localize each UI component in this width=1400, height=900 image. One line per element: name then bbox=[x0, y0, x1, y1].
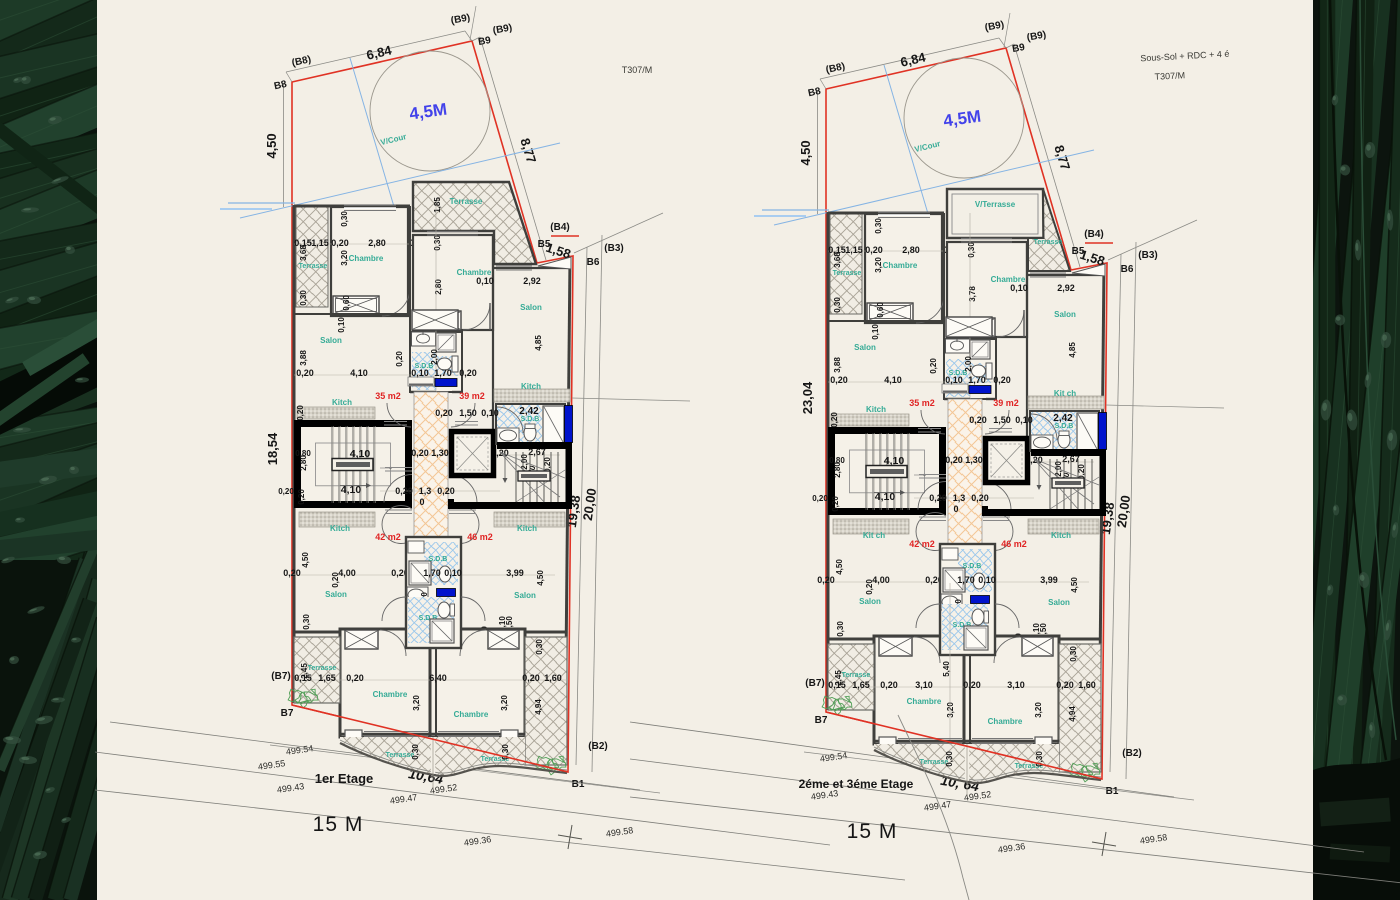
svg-text:Chambre: Chambre bbox=[907, 697, 942, 706]
svg-text:0,10: 0,10 bbox=[1015, 415, 1033, 425]
svg-text:0,30: 0,30 bbox=[411, 744, 420, 760]
svg-text:0,20: 0,20 bbox=[411, 448, 429, 458]
svg-text:0,30: 0,30 bbox=[535, 639, 544, 655]
svg-text:3,99: 3,99 bbox=[506, 568, 524, 578]
svg-text:0,20: 0,20 bbox=[395, 486, 413, 496]
svg-text:Kitch: Kitch bbox=[1051, 531, 1071, 540]
svg-text:0,20: 0,20 bbox=[395, 351, 404, 367]
svg-text:4,85: 4,85 bbox=[1068, 342, 1077, 358]
svg-text:3,20: 3,20 bbox=[946, 702, 955, 718]
svg-text:1,70: 1,70 bbox=[968, 375, 986, 385]
svg-text:0,20: 0,20 bbox=[296, 368, 314, 378]
svg-text:0,20: 0,20 bbox=[522, 673, 540, 683]
svg-text:1,85: 1,85 bbox=[433, 197, 442, 213]
svg-text:1,65: 1,65 bbox=[318, 673, 336, 683]
svg-text:Kitch: Kitch bbox=[866, 405, 886, 414]
svg-text:3,10: 3,10 bbox=[1007, 680, 1025, 690]
svg-text:0,80: 0,80 bbox=[295, 449, 311, 458]
svg-text:3,88: 3,88 bbox=[299, 350, 308, 366]
svg-text:3,20: 3,20 bbox=[340, 250, 349, 266]
svg-text:5,40: 5,40 bbox=[942, 661, 951, 677]
svg-text:B1: B1 bbox=[572, 779, 585, 790]
svg-text:0,20: 0,20 bbox=[971, 493, 989, 503]
svg-text:4,94: 4,94 bbox=[1068, 706, 1077, 722]
svg-text:6,40: 6,40 bbox=[429, 673, 447, 683]
svg-text:0,30: 0,30 bbox=[833, 297, 842, 313]
svg-text:0,20: 0,20 bbox=[865, 245, 883, 255]
svg-text:(B4): (B4) bbox=[1084, 229, 1103, 240]
svg-text:B6: B6 bbox=[1121, 264, 1134, 275]
svg-text:S.D.B: S.D.B bbox=[1055, 423, 1074, 430]
svg-text:0,15: 0,15 bbox=[294, 238, 312, 248]
svg-text:Kitch: Kitch bbox=[332, 398, 352, 407]
svg-text:4,10: 4,10 bbox=[884, 455, 905, 467]
svg-text:4,10: 4,10 bbox=[350, 448, 371, 460]
svg-text:4,50: 4,50 bbox=[536, 570, 545, 586]
svg-text:0,10: 0,10 bbox=[411, 368, 429, 378]
svg-text:15 M: 15 M bbox=[313, 813, 364, 836]
svg-text:0: 0 bbox=[419, 497, 424, 507]
svg-text:Kitch: Kitch bbox=[521, 382, 541, 391]
svg-text:(B4): (B4) bbox=[550, 222, 569, 233]
svg-text:0,20: 0,20 bbox=[830, 375, 848, 385]
svg-text:Kit ch: Kit ch bbox=[863, 531, 885, 540]
svg-text:0,15: 0,15 bbox=[828, 680, 846, 690]
svg-text:Terrasse: Terrasse bbox=[299, 263, 328, 270]
svg-text:42 m2: 42 m2 bbox=[909, 539, 935, 549]
svg-text:1,70: 1,70 bbox=[434, 368, 452, 378]
svg-text:2éme et 3éme Etage: 2éme et 3éme Etage bbox=[799, 777, 914, 791]
svg-text:4,50: 4,50 bbox=[835, 559, 844, 575]
svg-text:4,10: 4,10 bbox=[350, 368, 368, 378]
svg-text:Kitch: Kitch bbox=[330, 524, 350, 533]
svg-text:(B3): (B3) bbox=[1138, 250, 1157, 261]
svg-text:0,30: 0,30 bbox=[1069, 646, 1078, 662]
svg-text:Salon: Salon bbox=[1048, 598, 1070, 607]
svg-text:3,10: 3,10 bbox=[915, 680, 933, 690]
svg-text:0,30: 0,30 bbox=[967, 242, 976, 258]
svg-text:(B7): (B7) bbox=[271, 671, 290, 682]
svg-text:0,20: 0,20 bbox=[331, 238, 349, 248]
svg-text:4,50: 4,50 bbox=[1070, 577, 1079, 593]
svg-text:(B7): (B7) bbox=[805, 678, 824, 689]
svg-text:0,30: 0,30 bbox=[302, 614, 311, 630]
svg-text:Chambre: Chambre bbox=[349, 254, 384, 263]
svg-text:4,94: 4,94 bbox=[534, 699, 543, 715]
svg-text:Chambre: Chambre bbox=[454, 710, 489, 719]
svg-text:0,20: 0,20 bbox=[283, 568, 301, 578]
svg-text:0,30: 0,30 bbox=[340, 211, 349, 227]
svg-text:39 m2: 39 m2 bbox=[993, 398, 1019, 408]
svg-text:0,20: 0,20 bbox=[435, 408, 453, 418]
svg-text:T307/M: T307/M bbox=[1154, 70, 1185, 82]
svg-text:1,50: 1,50 bbox=[459, 408, 477, 418]
svg-text:1,70: 1,70 bbox=[957, 575, 975, 585]
svg-text:3,88: 3,88 bbox=[833, 357, 842, 373]
svg-text:3,20: 3,20 bbox=[1034, 702, 1043, 718]
svg-text:Terrasse: Terrasse bbox=[833, 270, 862, 277]
svg-text:35 m2: 35 m2 bbox=[375, 391, 401, 401]
svg-text:Salon: Salon bbox=[514, 591, 536, 600]
svg-text:0,20: 0,20 bbox=[963, 680, 981, 690]
svg-text:Terrasse: Terrasse bbox=[308, 665, 337, 672]
svg-text:0,20: 0,20 bbox=[945, 455, 963, 465]
svg-text:0,30: 0,30 bbox=[945, 751, 954, 767]
svg-text:0,20: 0,20 bbox=[929, 493, 947, 503]
svg-text:1,30: 1,30 bbox=[431, 448, 449, 458]
svg-text:(B2): (B2) bbox=[1122, 748, 1141, 759]
svg-text:0,20: 0,20 bbox=[459, 368, 477, 378]
svg-text:0,20: 0,20 bbox=[831, 496, 840, 512]
svg-text:0,30: 0,30 bbox=[299, 290, 308, 306]
svg-text:S.D.B: S.D.B bbox=[963, 563, 982, 570]
svg-text:Salon: Salon bbox=[325, 590, 347, 599]
svg-text:3,20: 3,20 bbox=[412, 695, 421, 711]
svg-text:B9: B9 bbox=[1011, 42, 1026, 55]
svg-text:0,20: 0,20 bbox=[346, 673, 364, 683]
svg-text:0,30: 0,30 bbox=[433, 235, 442, 251]
svg-text:23,04: 23,04 bbox=[800, 381, 815, 414]
svg-text:1,3: 1,3 bbox=[419, 486, 432, 496]
svg-text:Salon: Salon bbox=[1054, 310, 1076, 319]
svg-text:0,60: 0,60 bbox=[342, 295, 351, 311]
svg-text:B9: B9 bbox=[477, 35, 492, 48]
svg-text:2,92: 2,92 bbox=[523, 276, 541, 286]
svg-text:3,20: 3,20 bbox=[874, 257, 883, 273]
svg-text:0,10: 0,10 bbox=[871, 324, 880, 340]
svg-text:Terrasse: Terrasse bbox=[842, 672, 871, 679]
svg-text:0,20: 0,20 bbox=[297, 489, 306, 505]
svg-text:3,99: 3,99 bbox=[1040, 575, 1058, 585]
svg-text:0,20: 0,20 bbox=[817, 575, 835, 585]
svg-text:T307/M: T307/M bbox=[622, 65, 653, 75]
svg-text:1,60: 1,60 bbox=[1078, 680, 1096, 690]
svg-text:2,80: 2,80 bbox=[902, 245, 920, 255]
svg-text:18,54: 18,54 bbox=[265, 432, 280, 465]
svg-text:0,10: 0,10 bbox=[978, 575, 996, 585]
svg-text:4,10: 4,10 bbox=[875, 491, 896, 503]
svg-text:Terrasse: Terrasse bbox=[1034, 239, 1063, 246]
svg-text:0,15: 0,15 bbox=[828, 245, 846, 255]
svg-text:0,20: 0,20 bbox=[1056, 680, 1074, 690]
svg-text:0,20: 0,20 bbox=[278, 487, 294, 496]
svg-text:Salon: Salon bbox=[520, 303, 542, 312]
svg-text:0,10: 0,10 bbox=[945, 375, 963, 385]
svg-text:Chambre: Chambre bbox=[373, 690, 408, 699]
svg-text:1,50: 1,50 bbox=[993, 415, 1011, 425]
svg-text:0,20: 0,20 bbox=[812, 494, 828, 503]
svg-text:39 m2: 39 m2 bbox=[459, 391, 485, 401]
svg-text:4,00: 4,00 bbox=[872, 575, 890, 585]
svg-text:0,20: 0,20 bbox=[437, 486, 455, 496]
svg-text:0,30: 0,30 bbox=[874, 218, 883, 234]
svg-text:0: 0 bbox=[953, 504, 958, 514]
svg-text:B7: B7 bbox=[815, 715, 828, 726]
svg-text:0,10: 0,10 bbox=[1010, 283, 1028, 293]
svg-text:S.D.B: S.D.B bbox=[521, 416, 540, 423]
svg-text:Salon: Salon bbox=[320, 336, 342, 345]
svg-text:0,10: 0,10 bbox=[481, 408, 499, 418]
svg-text:2,80: 2,80 bbox=[434, 279, 443, 295]
svg-text:(B2): (B2) bbox=[588, 741, 607, 752]
svg-text:2,92: 2,92 bbox=[1057, 283, 1075, 293]
svg-text:4,10: 4,10 bbox=[884, 375, 902, 385]
svg-text:0,20: 0,20 bbox=[830, 412, 839, 428]
svg-text:0,20: 0,20 bbox=[880, 680, 898, 690]
svg-text:S.D.B: S.D.B bbox=[429, 556, 448, 563]
svg-text:(B3): (B3) bbox=[604, 243, 623, 254]
svg-text:0,15: 0,15 bbox=[294, 673, 312, 683]
svg-text:Kitch: Kitch bbox=[517, 524, 537, 533]
svg-text:15 M: 15 M bbox=[847, 820, 898, 843]
svg-text:1er Etage: 1er Etage bbox=[315, 771, 374, 786]
svg-text:1,3: 1,3 bbox=[953, 493, 966, 503]
svg-text:4,85: 4,85 bbox=[534, 335, 543, 351]
svg-text:0,80: 0,80 bbox=[829, 456, 845, 465]
svg-text:2,42: 2,42 bbox=[519, 406, 539, 417]
svg-text:4,00: 4,00 bbox=[338, 568, 356, 578]
svg-text:1,15: 1,15 bbox=[845, 245, 863, 255]
svg-text:3,20: 3,20 bbox=[500, 695, 509, 711]
svg-text:0,20: 0,20 bbox=[865, 579, 874, 595]
svg-text:1,65: 1,65 bbox=[852, 680, 870, 690]
svg-text:0,10: 0,10 bbox=[337, 317, 346, 333]
svg-text:1,60: 1,60 bbox=[544, 673, 562, 683]
svg-text:46 m2: 46 m2 bbox=[467, 532, 493, 542]
svg-text:46 m2: 46 m2 bbox=[1001, 539, 1027, 549]
svg-text:4,50: 4,50 bbox=[264, 133, 279, 158]
svg-text:Salon: Salon bbox=[859, 597, 881, 606]
svg-text:B6: B6 bbox=[587, 257, 600, 268]
svg-text:Chambre: Chambre bbox=[988, 717, 1023, 726]
svg-text:1,70: 1,70 bbox=[423, 568, 441, 578]
svg-text:Kit ch: Kit ch bbox=[1054, 389, 1076, 398]
svg-text:0,20: 0,20 bbox=[993, 375, 1011, 385]
svg-text:4,50: 4,50 bbox=[301, 552, 310, 568]
svg-text:V/Terrasse: V/Terrasse bbox=[975, 200, 1016, 209]
svg-text:Terrasse: Terrasse bbox=[450, 197, 483, 206]
svg-text:0,20: 0,20 bbox=[929, 358, 938, 374]
svg-text:B7: B7 bbox=[281, 708, 294, 719]
svg-text:0,20: 0,20 bbox=[331, 572, 340, 588]
svg-text:4,10: 4,10 bbox=[341, 484, 362, 496]
svg-text:0,10: 0,10 bbox=[444, 568, 462, 578]
svg-text:35 m2: 35 m2 bbox=[909, 398, 935, 408]
svg-text:Chambre: Chambre bbox=[883, 261, 918, 270]
svg-text:4,50: 4,50 bbox=[798, 140, 813, 165]
svg-text:2,80: 2,80 bbox=[368, 238, 386, 248]
svg-text:2,00: 2,00 bbox=[964, 356, 973, 372]
svg-text:2,42: 2,42 bbox=[1053, 413, 1073, 424]
svg-text:Salon: Salon bbox=[854, 343, 876, 352]
svg-text:0,30: 0,30 bbox=[836, 621, 845, 637]
svg-text:3,78: 3,78 bbox=[968, 286, 977, 302]
svg-text:1,15: 1,15 bbox=[311, 238, 329, 248]
svg-text:0,10: 0,10 bbox=[476, 276, 494, 286]
svg-text:B1: B1 bbox=[1106, 786, 1119, 797]
svg-text:0,60: 0,60 bbox=[876, 302, 885, 318]
svg-text:42 m2: 42 m2 bbox=[375, 532, 401, 542]
svg-text:0,20: 0,20 bbox=[296, 405, 305, 421]
svg-text:1,30: 1,30 bbox=[965, 455, 983, 465]
svg-text:2,00: 2,00 bbox=[430, 349, 439, 365]
svg-text:0,20: 0,20 bbox=[969, 415, 987, 425]
